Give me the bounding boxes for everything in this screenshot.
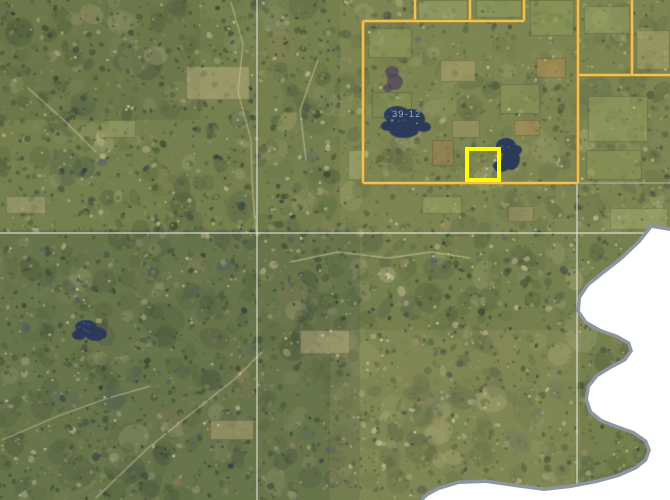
lake-label: 39-12 <box>392 109 421 120</box>
map-viewport: 39-12 <box>0 0 670 500</box>
water-surface <box>424 228 670 500</box>
municipal-boundary-lines <box>363 0 670 183</box>
section-lines <box>0 0 670 500</box>
lake-water-body <box>424 228 670 500</box>
selected-parcel-highlight[interactable] <box>467 149 499 180</box>
map-overlay-layer: 39-12 <box>0 0 670 500</box>
